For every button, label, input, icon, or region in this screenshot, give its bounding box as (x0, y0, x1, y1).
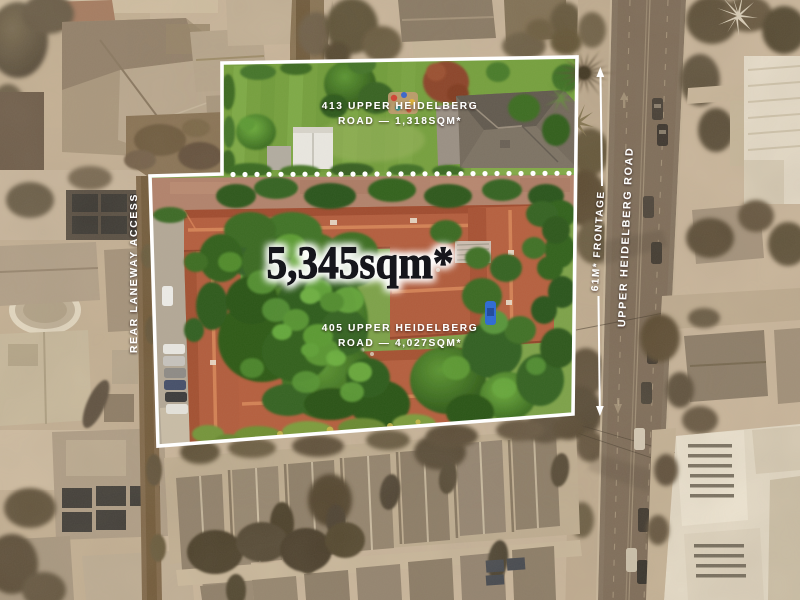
svg-text:REAR LANEWAY ACCESS: REAR LANEWAY ACCESS (129, 193, 140, 353)
svg-text:405 UPPER HEIDELBERG: 405 UPPER HEIDELBERG (322, 323, 479, 334)
svg-text:413 UPPER HEIDELBERG: 413 UPPER HEIDELBERG (322, 101, 479, 112)
svg-text:ROAD — 4,027SQM*: ROAD — 4,027SQM* (338, 338, 462, 349)
svg-text:ROAD — 1,318SQM*: ROAD — 1,318SQM* (338, 116, 462, 127)
svg-text:5,345sqm*: 5,345sqm* (267, 237, 454, 289)
